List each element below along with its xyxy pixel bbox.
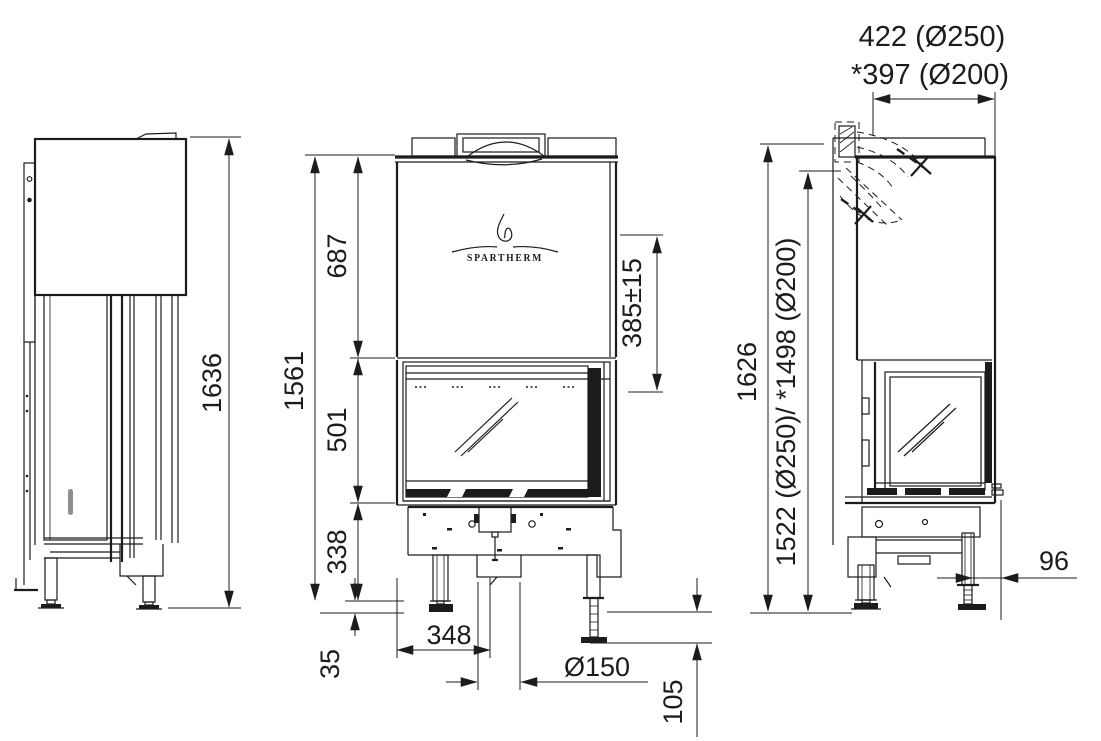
front-glass xyxy=(406,366,588,497)
door-hinge-pin xyxy=(992,484,1001,488)
door-handle-slot xyxy=(68,489,73,515)
dim-label-right-overall-height: 1626 xyxy=(732,342,762,402)
glass-side-return xyxy=(588,368,601,497)
dim-overall-height-left-view: 1636 xyxy=(168,137,241,608)
flue-dome xyxy=(468,142,544,156)
technical-drawing-page: 1636 SPARTHERM xyxy=(0,0,1101,741)
air-intake-spigot xyxy=(477,555,521,577)
hood-body-side xyxy=(35,139,186,295)
dim-label-left-overall-height: 1636 xyxy=(197,353,227,413)
dim-label-foot-adjust: 105 xyxy=(658,679,688,724)
intake-bracket xyxy=(479,507,511,532)
front-left-leg xyxy=(433,555,448,601)
door-frame-side xyxy=(985,362,992,483)
spartherm-logo: SPARTHERM xyxy=(452,214,558,264)
flame-icon xyxy=(497,214,511,241)
right-side-view xyxy=(833,122,1003,610)
dim-label-leg-setback: 96 xyxy=(1039,546,1069,576)
dim-label-hood-height: 687 xyxy=(322,233,352,278)
glass-reflection xyxy=(455,398,512,452)
dims-right-view: 422 (Ø250) *397 (Ø200) 1626 1522 (Ø250)/… xyxy=(732,21,1077,620)
left-leg xyxy=(45,558,57,600)
dim-label-flue-offset-200: *397 (Ø200) xyxy=(851,59,1009,91)
dim-label-flue-axis-height: 1522 (Ø250)/ *1498 (Ø200) xyxy=(771,238,801,567)
foot-retracted xyxy=(429,604,453,612)
rear-leg xyxy=(858,565,874,600)
left-side-view xyxy=(14,133,186,609)
dim-label-intake-diameter: Ø150 xyxy=(564,652,630,682)
dim-label-top-to-glass: 385±15 xyxy=(617,258,647,348)
dim-label-foot-min: 35 xyxy=(315,649,345,679)
dim-label-flue-offset-250: 422 (Ø250) xyxy=(859,21,1006,53)
side-door-panel xyxy=(44,295,107,540)
side-glass xyxy=(890,377,981,486)
dim-label-intake-offset: 348 xyxy=(426,620,471,650)
dims-front-view: 1561 687 501 338 35 348 Ø150 105 385±15 xyxy=(279,155,712,737)
foot-extended-plate xyxy=(581,637,607,643)
front-leg xyxy=(962,533,974,585)
fireplace-technical-drawing: 1636 SPARTHERM xyxy=(0,0,1101,741)
flue-collar-housing xyxy=(457,134,545,156)
dim-label-glass-height: 501 xyxy=(322,407,352,452)
rear-panel xyxy=(24,163,35,342)
front-view: SPARTHERM xyxy=(395,134,621,643)
brand-logo-text: SPARTHERM xyxy=(467,252,543,264)
foot-extended-stem xyxy=(590,598,598,637)
glass-reflection xyxy=(898,404,950,452)
dim-label-front-overall-height: 1561 xyxy=(279,351,309,411)
dim-label-base-height: 338 xyxy=(322,529,352,574)
right-leg xyxy=(143,576,155,602)
firebox-frame-front xyxy=(403,362,610,501)
